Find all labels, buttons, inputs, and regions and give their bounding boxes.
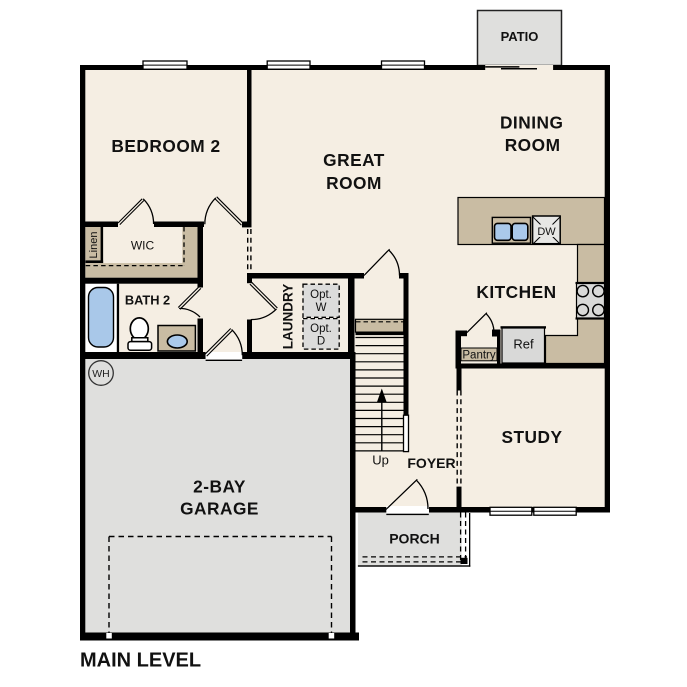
svg-text:Linen: Linen: [88, 232, 100, 259]
svg-text:2-BAY: 2-BAY: [193, 477, 246, 497]
svg-text:STUDY: STUDY: [501, 427, 562, 447]
svg-text:MAIN LEVEL: MAIN LEVEL: [80, 650, 201, 672]
svg-text:Ref: Ref: [513, 336, 534, 351]
svg-text:Opt.: Opt.: [310, 289, 332, 301]
svg-text:D: D: [317, 336, 325, 348]
svg-text:ROOM: ROOM: [326, 173, 382, 193]
svg-text:W: W: [316, 302, 327, 314]
svg-text:FOYER: FOYER: [407, 455, 455, 471]
svg-text:WIC: WIC: [131, 239, 155, 253]
svg-text:Up: Up: [372, 453, 389, 468]
svg-text:DINING: DINING: [500, 113, 563, 133]
svg-text:LAUNDRY: LAUNDRY: [280, 284, 295, 350]
svg-text:DW: DW: [537, 226, 556, 238]
svg-text:GREAT: GREAT: [323, 150, 385, 170]
svg-text:Opt.: Opt.: [310, 323, 332, 335]
svg-text:PORCH: PORCH: [389, 531, 440, 547]
svg-text:ROOM: ROOM: [505, 135, 561, 155]
svg-text:GARAGE: GARAGE: [180, 499, 259, 519]
svg-text:BEDROOM 2: BEDROOM 2: [111, 136, 220, 156]
svg-text:KITCHEN: KITCHEN: [476, 282, 556, 302]
svg-text:BATH 2: BATH 2: [125, 292, 170, 307]
svg-text:PATIO: PATIO: [501, 29, 539, 44]
svg-text:WH: WH: [92, 368, 110, 380]
svg-text:Pantry: Pantry: [462, 350, 495, 362]
